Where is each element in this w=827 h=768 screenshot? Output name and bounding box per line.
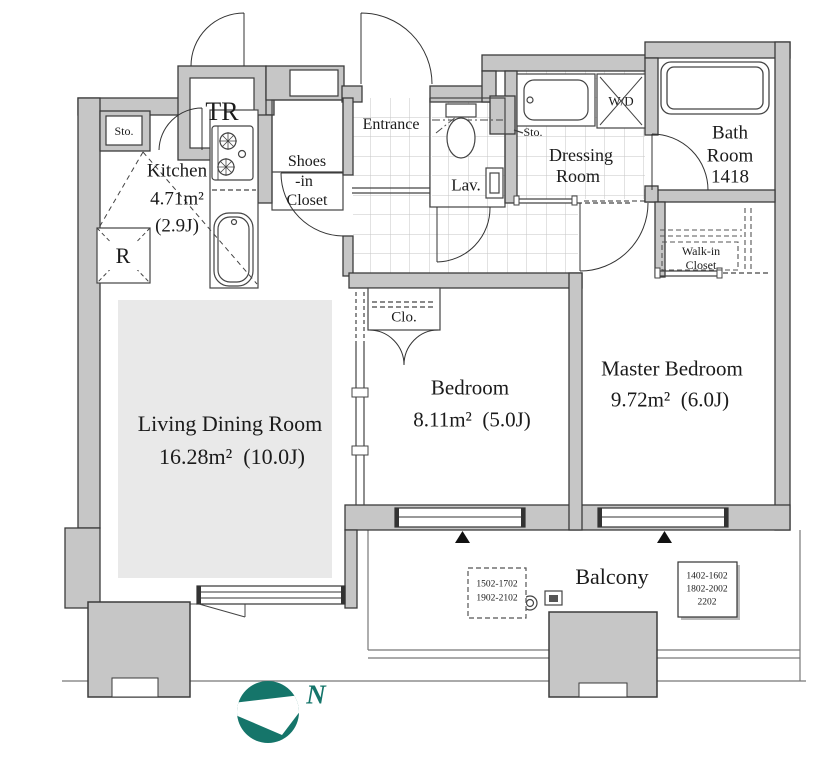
dressing-bottom-wall	[517, 199, 575, 203]
trunk-room-label: TR	[205, 99, 238, 125]
dressing-room-label-1: Dressing	[549, 146, 613, 164]
pillar-notch-left	[112, 678, 158, 697]
north-compass-icon	[233, 681, 301, 743]
shoes-closet-label-2: -in	[295, 174, 313, 190]
pillar-notch-center	[579, 683, 627, 697]
entrance-label: Entrance	[363, 117, 420, 133]
bath-room-label-1: Bath	[712, 124, 748, 143]
solid-unit-note-line-3: 2202	[698, 598, 717, 608]
bathroom-door	[652, 134, 708, 190]
dressing-room-label-2: Room	[556, 167, 600, 185]
bedroom-label: Bedroom	[431, 378, 509, 399]
walkin-closet-label-1: Walk-in	[682, 245, 720, 257]
ldr-bedroom-partition	[356, 345, 364, 505]
window-direction-markers	[455, 531, 672, 543]
solid-unit-note-line-1: 1402-1602	[686, 572, 727, 582]
balcony-label: Balcony	[575, 566, 648, 588]
walkin-closet-label-2: Closet	[686, 259, 717, 271]
closet-double-doors	[370, 330, 438, 365]
master-bedroom-label: Master Bedroom	[601, 359, 743, 380]
master-bedroom-area-label: 9.72m² (6.0J)	[611, 390, 729, 411]
ldr-sliding-window	[197, 586, 345, 604]
shoes-closet-label-1: Shoes	[288, 154, 326, 170]
alcove-box	[290, 70, 338, 96]
living-room-floor-shade	[118, 300, 332, 578]
shoes-closet-label-3: Closet	[287, 193, 328, 209]
storage-kitchen-label: Sto.	[114, 125, 133, 137]
bedroom-area-label: 8.11m² (5.0J)	[413, 410, 531, 431]
master-bedroom-door	[580, 203, 648, 271]
closet-label: Clo.	[391, 311, 416, 326]
entrance-door	[361, 13, 432, 84]
living-dining-area-label: 16.28m² (10.0J)	[159, 446, 305, 468]
north-label: N	[306, 682, 326, 709]
kitchen-label: Kitchen	[147, 162, 207, 181]
balcony-drain	[523, 591, 562, 610]
kitchen-area-label: 4.71m²	[150, 190, 204, 209]
toilet-bowl	[447, 118, 475, 158]
dashed-unit-note-line-2: 1902-2102	[476, 594, 517, 604]
solid-unit-note-line-2: 1802-2002	[686, 585, 727, 595]
refrigerator-label: R	[116, 245, 131, 267]
storage-hall-label: Sto.	[523, 126, 542, 138]
kitchen-tatami-label: (2.9J)	[155, 217, 199, 236]
dashed-unit-note-line-1: 1502-1702	[476, 580, 517, 590]
toilet-tank	[446, 104, 476, 117]
lavatory-label: Lav.	[451, 177, 481, 194]
floor-plan: TR Sto. Kitchen 4.71m² (2.9J) R Shoes -i…	[0, 0, 827, 768]
bathtub	[661, 62, 769, 114]
trunk-room-door	[191, 13, 244, 66]
bath-room-size-label: 1418	[711, 168, 749, 187]
washer-dryer-label: W/D	[608, 95, 633, 108]
living-dining-label: Living Dining Room	[138, 413, 323, 435]
bath-room-label-2: Room	[707, 147, 753, 166]
